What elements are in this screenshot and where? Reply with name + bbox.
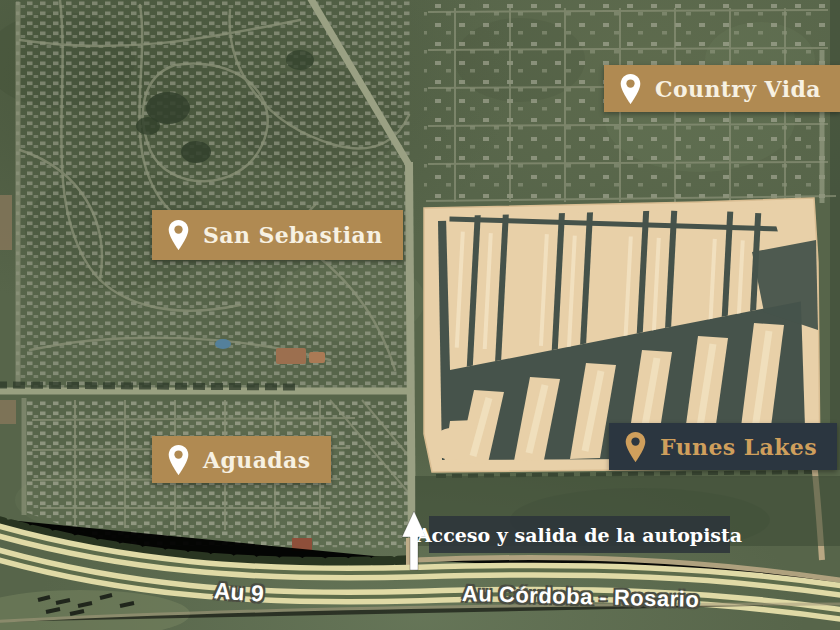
- forest-patch: [136, 117, 160, 135]
- tree-line: [436, 472, 812, 476]
- location-pin-icon: [167, 219, 190, 251]
- map-label-text: Aguadas: [203, 447, 311, 473]
- pool: [215, 339, 231, 349]
- map-label-san-sebastian: San Sebastian: [152, 210, 403, 260]
- dirt-patch: [0, 400, 16, 424]
- forest-patch: [181, 141, 211, 163]
- road-vertical: [409, 162, 412, 558]
- map-label-text: Country Vida: [655, 76, 821, 102]
- sports-court: [276, 348, 306, 364]
- location-pin-icon: [167, 444, 190, 476]
- map-label-aguadas: Aguadas: [152, 436, 331, 483]
- road-label-au9: Au 9: [213, 577, 265, 607]
- satellite-map: Country Vida San Sebastian Aguadas Funes…: [0, 0, 840, 630]
- access-annotation-text: Acceso y salida de la autopista: [417, 524, 742, 546]
- sports-court: [309, 352, 325, 363]
- forest-patch: [286, 50, 314, 70]
- map-label-text: Funes Lakes: [660, 434, 817, 460]
- map-label-funes-lakes: Funes Lakes: [609, 423, 837, 470]
- field: [0, 590, 190, 630]
- map-label-text: San Sebastian: [203, 222, 383, 248]
- access-annotation: Acceso y salida de la autopista: [429, 516, 730, 553]
- location-pin-icon: [624, 431, 647, 463]
- map-label-country-vida: Country Vida: [604, 65, 840, 112]
- location-pin-icon: [619, 73, 642, 105]
- dirt-patch: [0, 195, 12, 250]
